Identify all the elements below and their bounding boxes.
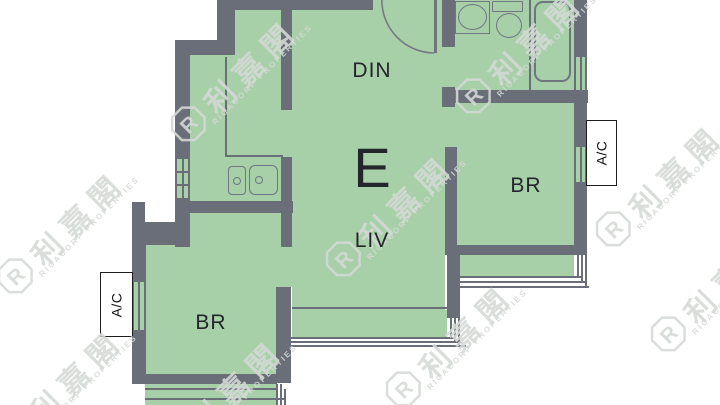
wash-basin-icon — [458, 4, 487, 30]
wall-bedroom-right-bottom — [445, 245, 574, 255]
window-mullion — [177, 171, 188, 173]
window-mullion — [182, 159, 184, 198]
floor-corridor — [190, 213, 281, 247]
toilet-tank-icon — [492, 1, 523, 12]
window-sill — [585, 255, 587, 288]
window-sill — [450, 281, 587, 283]
floor-bedroom-left — [145, 245, 276, 374]
room-label-bedroom-left: BR — [171, 312, 251, 333]
window-sill — [448, 286, 589, 288]
watermark: R 利嘉閣 RICACORP PROPERTIES — [641, 216, 720, 363]
wall-right — [574, 0, 587, 57]
ricacorp-logo-icon: R — [588, 203, 642, 257]
floor-kitchen-opening — [281, 110, 292, 157]
wall-living-divider — [276, 287, 291, 383]
floor-bedroom-right-door — [445, 103, 457, 147]
ac-box-right: A/C — [586, 120, 617, 186]
wall — [175, 40, 235, 55]
window-sill — [458, 318, 460, 347]
window-sill — [280, 384, 282, 405]
unit-letter: E — [332, 140, 412, 196]
wall-bedroom-right-left — [445, 147, 457, 255]
room-label-bedroom-right: BR — [486, 175, 566, 196]
watermark-cjk-text: 利嘉閣 — [618, 111, 720, 227]
room-label-dining: DIN — [332, 60, 412, 81]
bathtub-icon — [534, 1, 571, 82]
ac-box-left: A/C — [100, 272, 133, 337]
watermark-cjk-text: 利嘉閣 — [673, 216, 720, 332]
kitchen-sink-icon — [249, 165, 278, 195]
window-sill — [285, 341, 461, 343]
svg-text:R: R — [656, 321, 683, 348]
watermark-latin-text: RICACORP PROPERTIES — [690, 233, 720, 337]
floor-bathroom-door — [442, 47, 455, 87]
wall-bedroom-left — [132, 330, 146, 384]
svg-text:R: R — [3, 263, 30, 290]
ac-label: A/C — [594, 141, 610, 166]
window-mullion — [138, 282, 140, 330]
ac-label: A/C — [109, 292, 125, 317]
floor-bedroom-right-baywindow — [457, 255, 574, 276]
wall-top — [217, 0, 373, 10]
bathroom-divider-line — [529, 0, 531, 91]
watermark-latin-text: RICACORP PROPERTIES — [37, 175, 141, 279]
window-sill — [450, 318, 452, 339]
kitchen-window — [175, 157, 190, 200]
floor-plan: A/C A/C R 利嘉閣 RICACORP PROPERTIES R 利嘉閣 … — [0, 0, 720, 405]
window-sill — [581, 255, 583, 283]
window-mullion — [580, 57, 582, 90]
wall-right — [574, 182, 587, 255]
wall-bathroom-left — [442, 0, 455, 47]
wall-bathroom-bottom — [442, 90, 588, 103]
svg-text:R: R — [601, 216, 628, 243]
ac-window-left — [132, 282, 146, 330]
wall — [132, 202, 145, 222]
watermark-latin-text: RICACORP PROPERTIES — [35, 333, 139, 405]
svg-text:R: R — [391, 376, 418, 403]
window-mullion — [580, 147, 582, 182]
watermark-cjk-text: 利嘉閣 — [20, 158, 136, 274]
window-sill — [145, 398, 286, 400]
window-sill — [452, 276, 583, 278]
window-sill — [145, 388, 277, 390]
ricacorp-logo-icon: R — [0, 250, 44, 304]
window-sill — [577, 255, 579, 278]
room-label-living: LIV — [332, 230, 412, 251]
floor-living-baywindow — [292, 310, 447, 337]
wall-bedroom-left — [132, 245, 146, 282]
kitchen-sink-drain-icon — [255, 176, 263, 184]
entry-door-arc-icon — [381, 0, 435, 54]
toilet-bowl-icon — [496, 13, 522, 38]
wall-kitchen-bottom — [190, 201, 293, 213]
window-sill — [454, 318, 456, 343]
kitchen-counter-line — [225, 155, 283, 157]
kitchen-sink-drain-icon — [233, 177, 241, 185]
ricacorp-logo-icon: R — [378, 363, 432, 405]
window-sill — [276, 384, 278, 405]
window-sill — [282, 345, 466, 347]
wall-kitchen-right — [281, 157, 292, 247]
kitchen-counter-line — [225, 57, 227, 157]
bathroom-window — [574, 57, 587, 90]
wall — [132, 222, 190, 245]
wall-kitchen-right — [281, 10, 292, 110]
window-sill — [284, 389, 286, 405]
window-mullion — [177, 184, 188, 186]
wall-bedroom-left-bottom — [145, 374, 277, 384]
window-sill — [288, 337, 456, 339]
wall-kitchen-left — [175, 55, 190, 157]
ricacorp-logo-icon: R — [643, 308, 697, 362]
window-sill — [292, 307, 447, 309]
watermark-latin-text: RICACORP PROPERTIES — [635, 128, 720, 232]
